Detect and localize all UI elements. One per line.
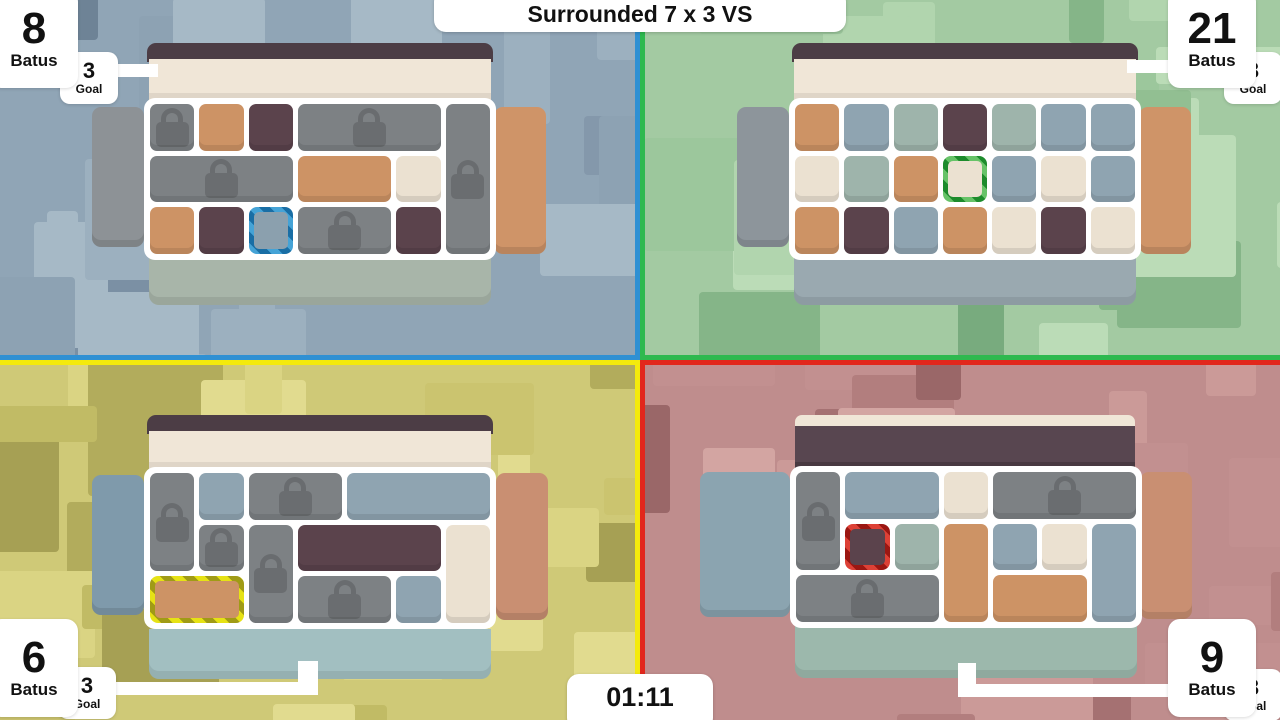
game-title-banner: Surrounded 7 x 3 VS [434,0,846,32]
batus-value: 9 [1200,636,1224,680]
lock-icon [254,554,287,593]
board-header [149,59,491,100]
block-piece [155,581,239,618]
board-footer [794,258,1136,305]
block-piece[interactable] [249,104,293,151]
board-right-tray [496,473,548,620]
lock-icon [328,211,361,250]
locked-piece [150,473,194,571]
selected-piece[interactable] [150,576,244,623]
block-piece[interactable] [199,207,243,254]
batus-score-badge: 9 Batus [1168,619,1256,717]
batus-value: 6 [22,636,46,680]
locked-piece [199,525,243,572]
player-quadrant-yellow: 3 Goal 6 Batus [0,360,640,720]
block-piece[interactable] [993,575,1087,622]
timer-value: 01:11 [606,682,674,713]
lock-icon [205,528,238,567]
timer-badge: 01:11 [567,674,713,720]
batus-score-badge: 6 Batus [0,619,78,717]
block-piece[interactable] [446,525,490,623]
block-piece[interactable] [795,156,839,203]
board-header [795,426,1135,469]
player-quadrant-red: 3 Goal 9 Batus [640,360,1280,720]
locked-piece [298,207,392,254]
puzzle-grid[interactable] [790,466,1142,628]
block-piece[interactable] [895,524,939,571]
block-piece[interactable] [795,104,839,151]
lock-icon [353,108,386,147]
block-piece[interactable] [992,104,1036,151]
board-right-tray [1139,107,1191,254]
lock-icon [279,477,312,516]
goal-connector-line [90,682,318,695]
board-left-tray [92,107,144,247]
selected-piece[interactable] [845,524,889,571]
batus-score-badge: 21 Batus [1168,0,1256,88]
batus-connector-line [958,684,1180,697]
block-piece[interactable] [396,576,440,623]
block-piece[interactable] [844,207,888,254]
locked-piece [796,575,939,622]
locked-piece [446,104,490,254]
locked-piece [298,576,392,623]
block-piece[interactable] [199,473,243,520]
block-piece[interactable] [396,156,440,203]
locked-piece [796,472,840,570]
lock-icon [802,502,835,541]
board-right-tray [494,107,546,254]
block-piece[interactable] [150,207,194,254]
block-piece[interactable] [396,207,440,254]
empty-cell [254,212,288,249]
goal-value: 3 [81,675,93,697]
locked-piece [298,104,441,151]
board-left-tray [737,107,789,247]
block-piece[interactable] [894,207,938,254]
batus-label: Batus [10,680,57,700]
goal-value: 3 [83,60,95,82]
locked-piece [993,472,1136,519]
block-piece[interactable] [298,525,441,572]
block-piece[interactable] [199,104,243,151]
block-piece[interactable] [1091,207,1135,254]
block-piece[interactable] [844,156,888,203]
lock-icon [205,159,238,198]
selected-piece[interactable] [249,207,293,254]
batus-label: Batus [1188,51,1235,71]
locked-piece [249,525,293,623]
block-piece[interactable] [993,524,1037,571]
locked-piece [150,156,293,203]
block-piece[interactable] [944,524,988,622]
block-piece[interactable] [844,104,888,151]
goal-label: Goal [76,82,103,96]
lock-icon [328,580,361,619]
game-title: Surrounded 7 x 3 VS [528,1,753,28]
block-piece[interactable] [894,156,938,203]
lock-icon [851,579,884,618]
block-piece[interactable] [1092,524,1136,622]
block-piece[interactable] [347,473,490,520]
batus-score-badge: 8 Batus [0,0,78,88]
batus-label: Batus [10,51,57,71]
block-piece[interactable] [1041,104,1085,151]
lock-icon [451,160,484,199]
block-piece[interactable] [944,472,988,519]
puzzle-grid[interactable] [789,98,1141,260]
block-piece[interactable] [894,104,938,151]
batus-value: 21 [1188,7,1237,51]
lock-icon [156,503,189,542]
block-piece[interactable] [1091,104,1135,151]
player-quadrant-blue: 3 Goal 8 Batus [0,0,640,360]
board-right-tray [1140,472,1192,619]
block-piece[interactable] [943,104,987,151]
block-piece [948,161,982,198]
batus-value: 8 [22,7,46,51]
block-piece[interactable] [1041,156,1085,203]
board-header [794,59,1136,100]
block-piece[interactable] [992,207,1036,254]
locked-piece [150,104,194,151]
block-piece[interactable] [1042,524,1086,571]
block-piece[interactable] [992,156,1036,203]
puzzle-grid[interactable] [144,98,496,260]
lock-icon [1048,476,1081,515]
player-quadrant-green: 3 Goal 21 Batus [640,0,1280,360]
block-piece[interactable] [943,207,987,254]
board-footer [149,629,491,679]
block-piece[interactable] [298,156,392,203]
locked-piece [249,473,343,520]
selected-piece[interactable] [943,156,987,203]
block-piece [850,529,884,566]
board-header [149,431,491,469]
lock-icon [156,108,189,147]
batus-label: Batus [1188,680,1235,700]
board-footer [149,258,491,305]
block-piece[interactable] [845,472,939,519]
block-piece[interactable] [795,207,839,254]
block-piece[interactable] [1091,156,1135,203]
puzzle-grid[interactable] [144,467,496,629]
block-piece[interactable] [1041,207,1085,254]
board-left-tray [92,475,144,615]
board-left-tray [700,472,790,617]
